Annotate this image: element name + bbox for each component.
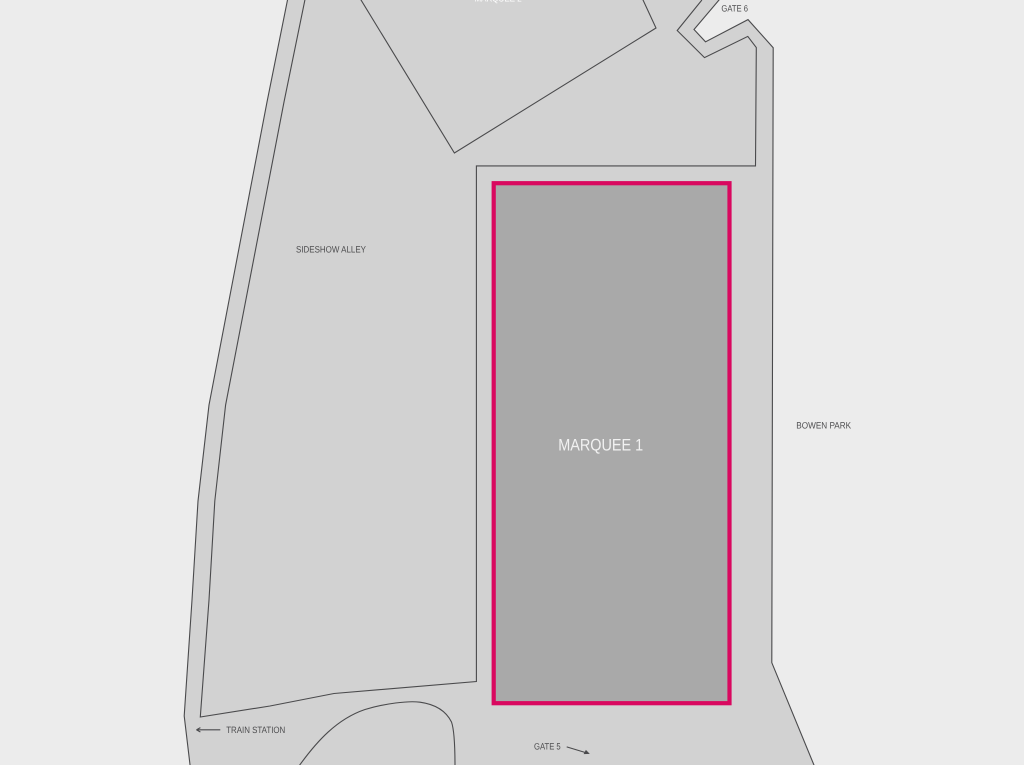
svg-text:SIDESHOW ALLEY: SIDESHOW ALLEY xyxy=(296,244,366,254)
svg-text:BOWEN PARK: BOWEN PARK xyxy=(796,420,852,430)
svg-text:GATE 5: GATE 5 xyxy=(534,742,561,752)
svg-text:TRAIN STATION: TRAIN STATION xyxy=(226,725,285,735)
svg-text:MARQUEE 1: MARQUEE 1 xyxy=(558,436,643,455)
svg-text:GATE 6: GATE 6 xyxy=(721,3,748,13)
svg-text:MARQUEE 2: MARQUEE 2 xyxy=(475,0,522,3)
